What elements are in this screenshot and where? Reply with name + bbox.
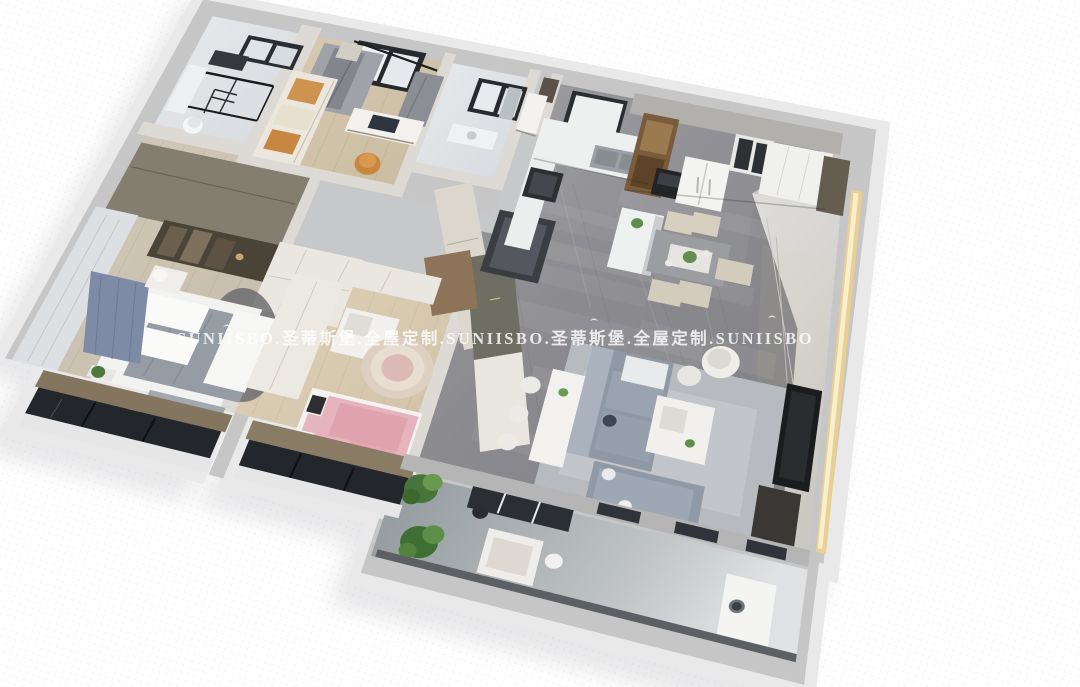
svg-text:SUNIISBO.圣蒂斯堡.全屋定制.SUNIISBO.圣蒂: SUNIISBO.圣蒂斯堡.全屋定制.SUNIISBO.圣蒂斯堡.全屋定制.SU… <box>177 328 813 348</box>
